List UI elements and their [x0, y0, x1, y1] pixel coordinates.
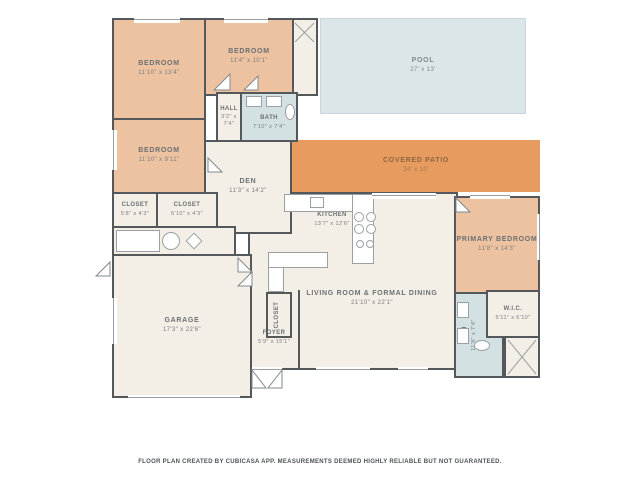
room-name: BEDROOM [138, 147, 179, 156]
room-name: BEDROOM [228, 48, 269, 57]
room-dims: 17'3" x 22'6" [163, 327, 201, 335]
sink-icon [246, 96, 262, 107]
water-heater-icon [162, 232, 180, 250]
room-dims: 5'8" x 4'3" [121, 211, 149, 218]
sink-icon [457, 302, 469, 318]
room-dims: 11'8" x 14'3" [457, 246, 538, 254]
window [111, 298, 117, 344]
kitchen-peninsula-counter [268, 252, 328, 268]
room-pool: POOL 27' x 13' [320, 18, 526, 114]
room-dims: 7'10" x 7'4" [253, 124, 285, 131]
stove-burner-icon [366, 224, 376, 234]
foyer-partition-wall [298, 290, 300, 370]
room-dims: 34' x 10' [383, 167, 449, 175]
room-covered-patio: COVERED PATIO 34' x 10' [292, 140, 540, 192]
sink-icon [310, 197, 324, 208]
floor-plan-canvas: POOL 27' x 13' COVERED PATIO 34' x 10' D… [0, 0, 640, 480]
room-bedroom-1: BEDROOM 11'10" x 13'4" [112, 18, 206, 120]
room-dims: 11'3" x 14'2" [229, 188, 267, 196]
room-dims: 11'10" x 13'4" [138, 70, 179, 78]
window [537, 214, 543, 260]
toilet-icon [285, 104, 295, 120]
window [111, 130, 117, 170]
sink-icon [266, 96, 282, 107]
garage-door [128, 395, 240, 401]
room-bedroom-3: BEDROOM 11'10" x 9'11" [112, 118, 206, 194]
room-bedroom-2: BEDROOM 11'4" x 10'1" [204, 18, 294, 96]
room-name: POOL [410, 57, 436, 66]
room-name: CLOSET [171, 202, 203, 210]
room-name: DEN [229, 178, 267, 187]
room-name: HALL [218, 106, 240, 114]
toilet-icon [474, 340, 490, 351]
window [316, 367, 370, 373]
disclaimer-text: FLOOR PLAN CREATED BY CUBICASA APP. MEAS… [0, 459, 640, 465]
room-garage: GARAGE 17'3" x 22'6" [112, 254, 252, 398]
room-hall: HALL 3'2" x 7'4" [216, 92, 242, 142]
window [398, 367, 428, 373]
room-dims: 3'2" x 7'4" [218, 114, 240, 128]
window [224, 17, 268, 23]
room-name: GARAGE [163, 317, 201, 326]
room-dims: 11'10" x 9'11" [138, 157, 179, 165]
stove-burner-icon [354, 224, 364, 234]
room-name: COVERED PATIO [383, 157, 449, 166]
room-name: BEDROOM [138, 60, 179, 69]
room-name: PRIMARY BEDROOM [457, 236, 538, 245]
room-name: CLOSET [121, 202, 149, 210]
room-primary-bedroom: PRIMARY BEDROOM 11'8" x 14'3" [454, 196, 540, 294]
room-wic: W.I.C. 5'11" x 6'10" [486, 290, 540, 338]
stove-burner-icon [354, 212, 364, 222]
room-dims: 27' x 13' [410, 67, 436, 75]
utility-counter [116, 230, 160, 252]
bedroom-2-closet [292, 18, 318, 96]
sink-icon [457, 328, 469, 344]
sliding-door [470, 193, 510, 199]
room-name: BATH [253, 115, 285, 123]
sink-icon [356, 240, 364, 248]
room-dims: 11'4" x 10'1" [228, 58, 269, 66]
room-name: W.I.C. [496, 306, 531, 314]
stove-burner-icon [366, 212, 376, 222]
foyer-closet [266, 292, 292, 338]
room-closet-1: CLOSET 5'8" x 4'3" [112, 192, 158, 228]
room-dims: 5'11" x 6'10" [496, 315, 531, 322]
laundry-closet [504, 336, 540, 378]
entry-door-gap [252, 367, 282, 373]
room-dims: 5'10" x 4'3" [171, 211, 203, 218]
window [134, 17, 180, 23]
sink-icon [366, 240, 374, 248]
sliding-door [372, 193, 436, 199]
room-closet-2: CLOSET 5'10" x 4'3" [156, 192, 218, 228]
